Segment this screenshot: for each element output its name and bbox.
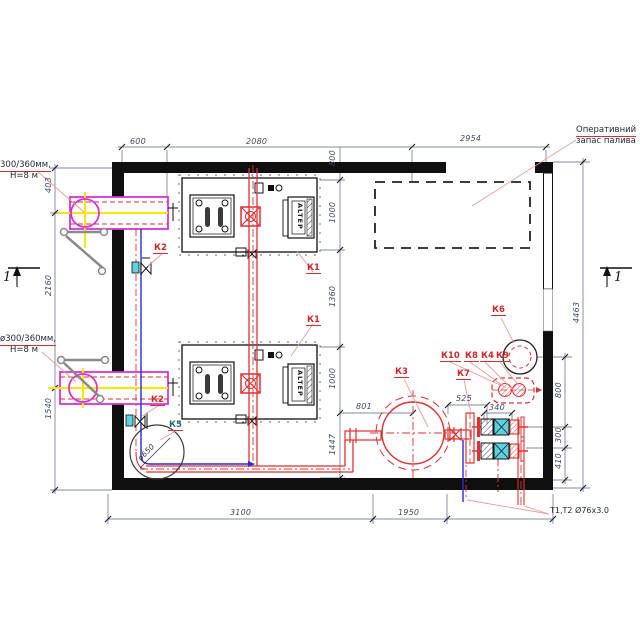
dim-right-300: 300 [554, 427, 563, 443]
label-k3: К3 [394, 368, 409, 378]
wall-right-thin-section [544, 173, 553, 289]
burner-2-brand: ALTEP [296, 370, 304, 397]
fuel-reserve-label-line2: запас палива [576, 136, 636, 146]
chimney-top-label-line2: Н=8 м [0, 171, 38, 181]
dim-top-2954: 2954 [460, 134, 481, 143]
pump-unit-2 [472, 441, 528, 461]
label-k1-upper: К1 [306, 264, 321, 274]
dim-h-801: 801 [356, 402, 372, 411]
dim-right-410: 410 [554, 453, 563, 469]
label-k9: К9 [495, 352, 510, 362]
dim-bottom-1950: 1950 [398, 508, 419, 517]
dim-top-600: 600 [130, 137, 146, 146]
dim-left-2160: 2160 [44, 275, 53, 296]
chimney-bottom-label-line1: ø300/360мм, [0, 334, 56, 346]
valve-k7 [450, 429, 461, 440]
dim-mid-1447: 1447 [328, 434, 337, 455]
label-k8: К8 [464, 352, 479, 362]
label-k7: К7 [456, 370, 471, 380]
dim-mid-1000b: 1000 [328, 368, 337, 389]
dim-top-2080: 2080 [246, 137, 267, 146]
pump-unit-1 [472, 417, 528, 437]
pipe-note: Т1,Т2 Ø76х3.0 [550, 506, 609, 516]
dim-mid-1360: 1360 [328, 286, 337, 307]
section-mark-left [8, 266, 40, 287]
dim-mid-800: 800 [328, 150, 337, 166]
chimney-bottom-label: ø300/360мм, Н=8 м [0, 334, 56, 355]
chimney-bottom-label-line2: Н=8 м [0, 345, 38, 355]
chimney-top-label: 300/360мм, Н=8 м [0, 160, 51, 181]
wall-right-opening [544, 289, 553, 331]
label-k2-upper: К2 [153, 244, 168, 254]
label-k5: К5 [168, 421, 183, 431]
fuel-reserve-label: Оперативний запас палива [576, 125, 636, 146]
dim-left-1540: 1540 [44, 398, 53, 419]
fuel-reserve-area [375, 182, 530, 248]
pump-assembly-k4 [492, 378, 542, 403]
tank-k3 [370, 390, 456, 478]
dim-mid-1000a: 1000 [328, 202, 337, 223]
label-k6: К6 [491, 306, 506, 316]
label-k1-lower: К1 [306, 316, 321, 326]
section-number-left: 1 [3, 270, 11, 285]
chimney-top-label-line1: 300/360мм, [0, 160, 51, 172]
valve-k2-lower [126, 413, 147, 429]
dim-right-4463: 4463 [572, 302, 581, 323]
dim-h-525: 525 [456, 394, 472, 403]
label-k4: К4 [480, 352, 495, 362]
dim-h-340: 340 [489, 403, 505, 412]
boiler-room-plan: 600 2080 2954 403 2160 1540 4463 800 300… [0, 0, 640, 640]
burner-1-brand: ALTEP [296, 203, 304, 230]
section-number-right: 1 [614, 270, 622, 285]
label-k2-lower: К2 [150, 396, 165, 406]
dim-right-800: 800 [554, 382, 563, 398]
dim-bottom-3100: 3100 [230, 508, 251, 517]
label-k10: К10 [440, 352, 461, 362]
